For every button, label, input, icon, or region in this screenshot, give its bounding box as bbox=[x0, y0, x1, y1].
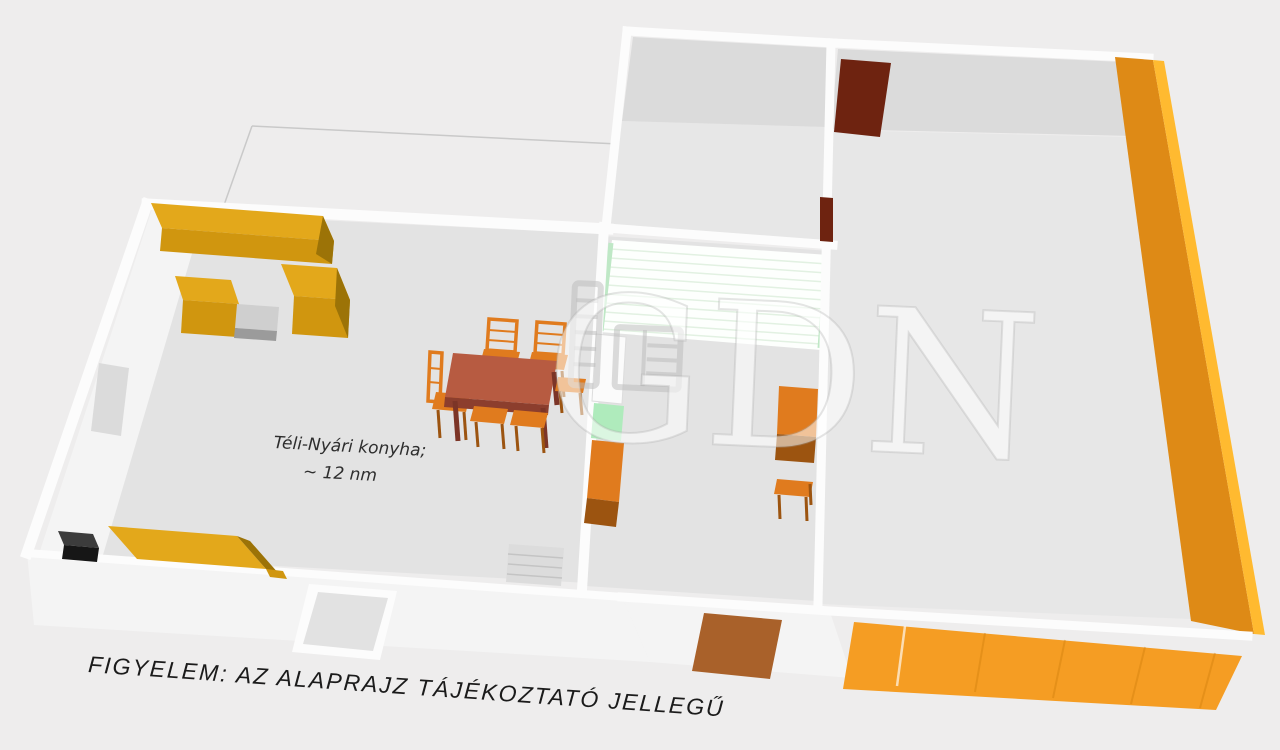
front-door-brown bbox=[692, 613, 782, 679]
table-top bbox=[445, 353, 557, 405]
watermark-text: GDN bbox=[540, 252, 1045, 506]
hall-floor bbox=[608, 121, 831, 240]
front-door-inner bbox=[303, 592, 388, 651]
divider-door-sliver bbox=[820, 197, 833, 242]
orange-cabinet-left-front bbox=[584, 498, 619, 527]
room-label-line2: ~ 12 nm bbox=[303, 462, 378, 486]
base-cabinet-left-front bbox=[181, 300, 239, 337]
terrace-line-top bbox=[252, 126, 618, 144]
watermark: GDN bbox=[540, 252, 1045, 506]
hall-back-wall-face bbox=[622, 37, 830, 127]
disclaimer-text: FIGYELEM: AZ ALAPRAJZ TÁJÉKOZTATÓ JELLEG… bbox=[87, 651, 725, 721]
stool-seat bbox=[470, 406, 508, 424]
floor-plan-canvas: GDN Téli-Nyári konyha; ~ 12 nm FIGYELEM:… bbox=[0, 0, 1280, 750]
sink-counter-top bbox=[235, 304, 279, 331]
floor-plan-svg: GDN Téli-Nyári konyha; ~ 12 nm FIGYELEM:… bbox=[0, 0, 1280, 750]
base-cabinet-left-top bbox=[175, 276, 239, 304]
appliance-front bbox=[62, 545, 99, 562]
